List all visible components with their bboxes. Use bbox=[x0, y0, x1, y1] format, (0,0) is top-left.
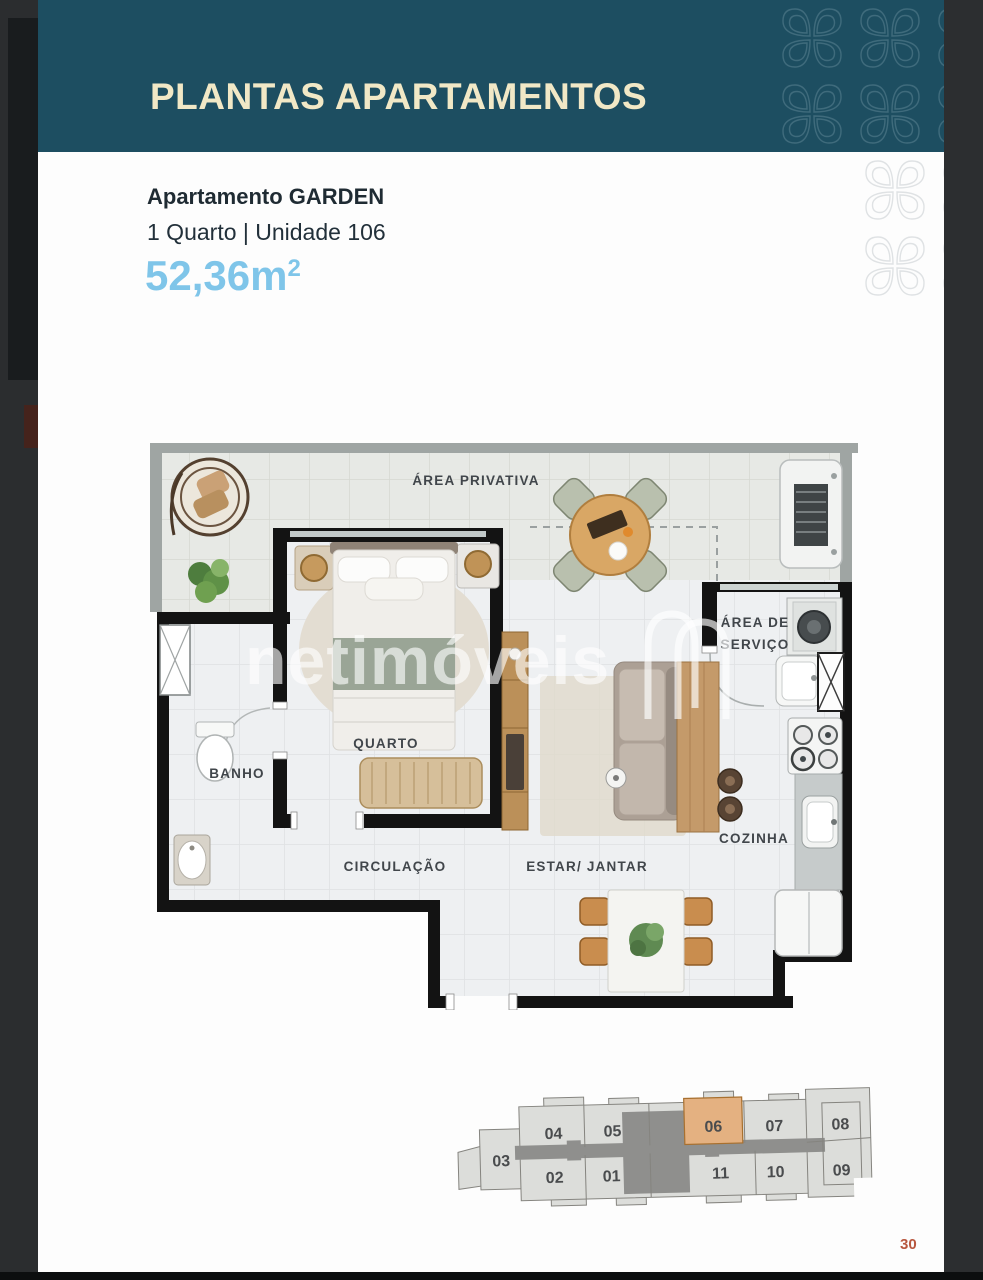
unit-label: 02 bbox=[546, 1170, 564, 1187]
unit-label: 10 bbox=[767, 1164, 785, 1181]
label-circulacao: CIRCULAÇÃO bbox=[344, 859, 447, 874]
apartment-name: Apartamento GARDEN bbox=[147, 184, 384, 210]
service-window bbox=[720, 584, 838, 590]
adjacent-page-photo bbox=[8, 18, 38, 380]
unit-location-key: 04 05 06 07 08 03 02 01 11 10 09 bbox=[455, 1085, 875, 1215]
apartment-area: 52,36m2 bbox=[145, 252, 301, 300]
unit-label: 05 bbox=[603, 1123, 621, 1140]
unit-label: 04 bbox=[544, 1126, 562, 1143]
flower-pattern bbox=[857, 152, 945, 312]
page-header: PLANTAS APARTAMENTOS bbox=[38, 0, 944, 152]
bedroom-window bbox=[290, 531, 486, 537]
document-page-view: PLANTAS APARTAMENTOS Apartamento GARDEN … bbox=[0, 0, 983, 1280]
page-title: PLANTAS APARTAMENTOS bbox=[150, 76, 647, 118]
netimoveis-logo-icon bbox=[640, 596, 735, 721]
page-number: 30 bbox=[900, 1236, 917, 1253]
label-area-privativa: ÁREA PRIVATIVA bbox=[412, 473, 539, 488]
unit-label: 01 bbox=[603, 1168, 621, 1185]
outside-mask bbox=[795, 964, 860, 1010]
viewer-right-edge bbox=[944, 0, 983, 1280]
area-value: 52,36m bbox=[145, 252, 287, 299]
label-banho: BANHO bbox=[209, 766, 265, 781]
unit-label: 07 bbox=[765, 1118, 783, 1135]
label-quarto: QUARTO bbox=[353, 736, 418, 751]
outside-mask bbox=[150, 912, 426, 1010]
adjacent-page-photo-detail bbox=[24, 405, 38, 448]
unit-label: 08 bbox=[831, 1116, 849, 1133]
unit-label: 09 bbox=[832, 1162, 850, 1179]
viewer-bottom-edge bbox=[0, 1272, 983, 1280]
floor-plan: ÁREA PRIVATIVA QUARTO BANHO CIRCULAÇÃO E… bbox=[150, 440, 860, 1010]
adjacent-page-edge bbox=[0, 0, 38, 1280]
label-estar-jantar: ESTAR/ JANTAR bbox=[526, 859, 648, 874]
flower-pattern bbox=[774, 0, 944, 152]
label-cozinha: COZINHA bbox=[719, 831, 789, 846]
unit-label: 11 bbox=[712, 1165, 729, 1182]
tv-rack bbox=[502, 632, 528, 830]
unit-label: 06 bbox=[704, 1118, 722, 1135]
unit-label: 03 bbox=[492, 1153, 510, 1170]
right-block-notch bbox=[854, 1177, 875, 1200]
brochure-page: PLANTAS APARTAMENTOS Apartamento GARDEN … bbox=[38, 0, 944, 1272]
area-exponent: 2 bbox=[287, 255, 300, 282]
apartment-details: 1 Quarto | Unidade 106 bbox=[147, 219, 386, 246]
ac-condenser-unit bbox=[780, 460, 842, 568]
hanging-chair bbox=[171, 459, 248, 535]
